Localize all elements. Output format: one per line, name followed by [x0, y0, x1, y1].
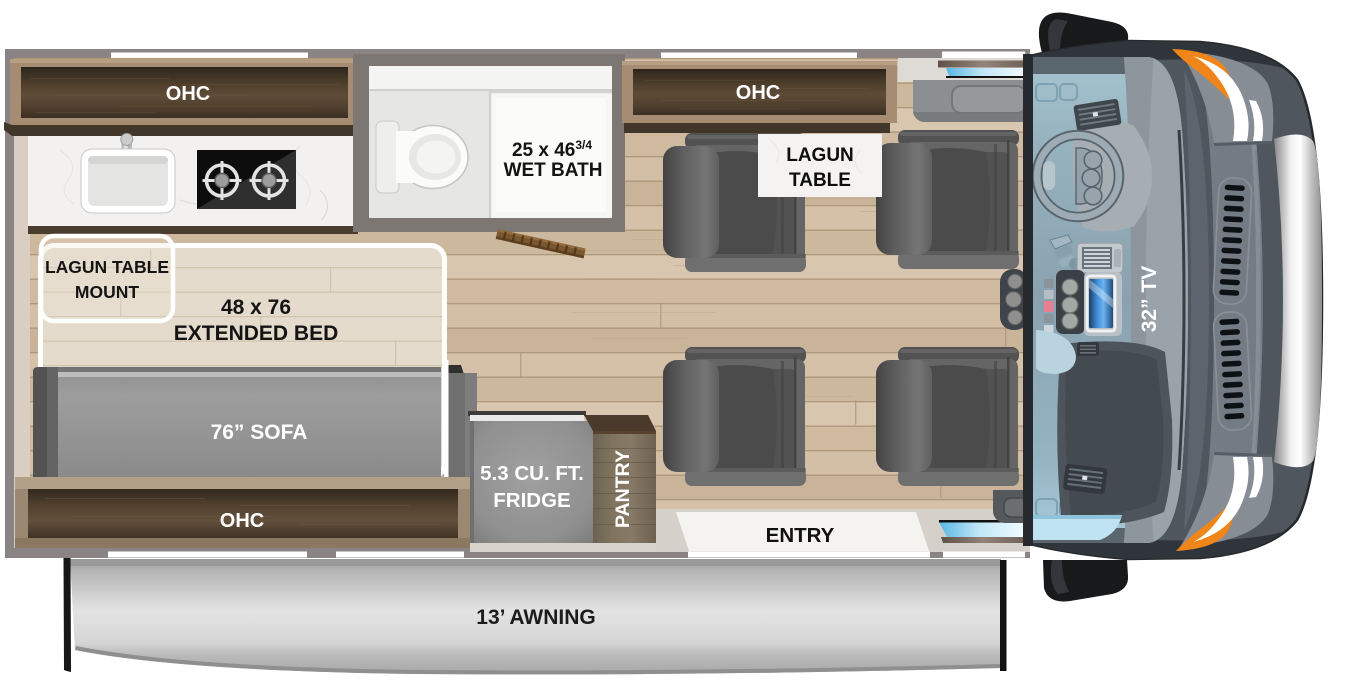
svg-text:TABLE: TABLE — [789, 170, 851, 191]
svg-text:OHC: OHC — [736, 82, 780, 104]
svg-text:WET BATH: WET BATH — [504, 160, 603, 181]
svg-text:EXTENDED BED: EXTENDED BED — [174, 322, 339, 345]
svg-text:48 x 76: 48 x 76 — [221, 296, 291, 319]
svg-text:76” SOFA: 76” SOFA — [211, 421, 308, 444]
svg-text:FRIDGE: FRIDGE — [493, 489, 570, 512]
svg-text:OHC: OHC — [220, 510, 264, 532]
svg-text:ENTRY: ENTRY — [766, 524, 835, 547]
svg-text:32” TV: 32” TV — [1138, 266, 1161, 333]
svg-text:LAGUN TABLE: LAGUN TABLE — [45, 257, 169, 277]
svg-text:PANTRY: PANTRY — [612, 450, 634, 528]
svg-text:5.3 CU. FT.: 5.3 CU. FT. — [480, 462, 584, 485]
svg-text:OHC: OHC — [166, 83, 210, 105]
svg-text:LAGUN: LAGUN — [786, 145, 854, 166]
svg-text:13’ AWNING: 13’ AWNING — [476, 606, 595, 629]
svg-text:MOUNT: MOUNT — [75, 282, 139, 302]
